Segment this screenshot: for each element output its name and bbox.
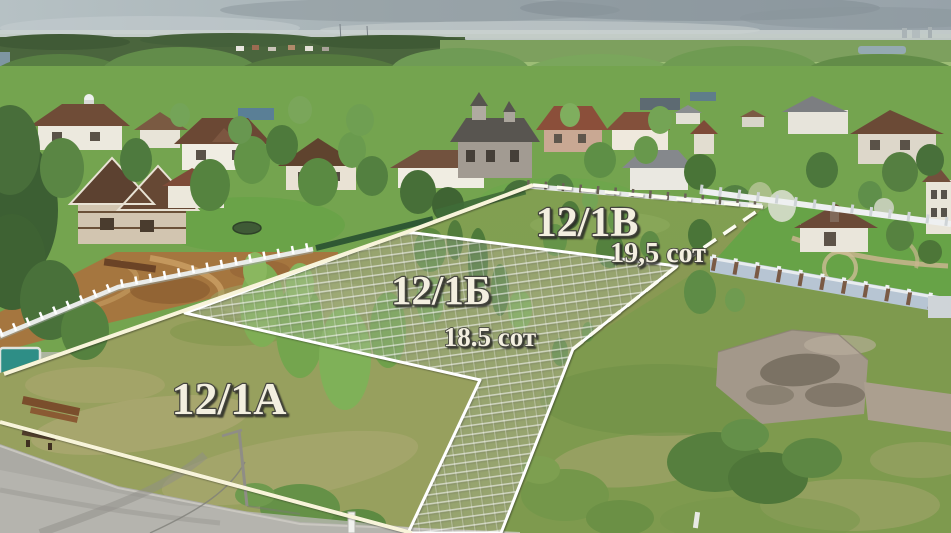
plot-b-label: 12/1Б	[391, 267, 491, 313]
plot-b-area: 18.5 сот	[444, 322, 536, 352]
plot-a-label: 12/1A	[172, 373, 287, 424]
plot-v-area: 19,5 сот	[610, 238, 706, 269]
aerial-photo: 12/1A 12/1Б 18.5 сот 12/1В 19,5 сот	[0, 0, 951, 533]
